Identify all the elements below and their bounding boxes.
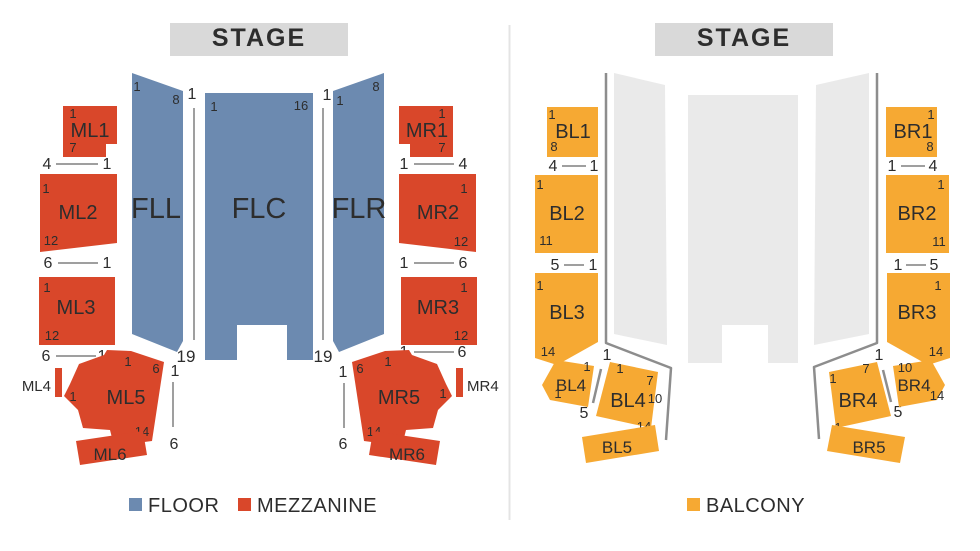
br4-rear-label: BR4 — [839, 390, 878, 412]
br1-seat-first: 1 — [927, 107, 934, 122]
bl4-front-num-left: 1 — [554, 386, 561, 401]
br3-label: BR3 — [898, 302, 937, 324]
aisle-right-row-first: 1 — [323, 87, 332, 104]
bl4-rear-num-right: 10 — [648, 391, 662, 406]
br4-front-num-bottom: 14 — [930, 388, 944, 403]
bl3-label: BL3 — [549, 302, 585, 324]
legend-mezzanine-label: MEZZANINE — [257, 495, 377, 517]
aisle-right-row-last: 19 — [314, 347, 333, 366]
bl2-seat-last: 11 — [539, 233, 553, 248]
balcony-map: STAGE BL1 1 8 4 1 BL2 1 11 5 1 BL3 1 14 … — [535, 23, 950, 517]
flc-seat-right: 16 — [294, 98, 308, 113]
bl4-rear-num-above: 1 — [603, 347, 612, 364]
bl1-seat-first: 1 — [548, 107, 555, 122]
mr2-seat-last: 12 — [454, 234, 468, 249]
mr5-label: MR5 — [378, 387, 420, 409]
br1-row-b: 4 — [929, 158, 938, 175]
br2-row-b: 5 — [930, 257, 939, 274]
br4-rear-num-above: 1 — [875, 347, 884, 364]
br5-label: BR5 — [852, 438, 885, 457]
aisle-left-row-first: 1 — [188, 86, 197, 103]
br2-seat-first: 1 — [937, 177, 944, 192]
mr5-aisle-top: 1 — [339, 364, 348, 381]
bl4-rear-num-top-left: 1 — [616, 361, 623, 376]
floor-mezzanine-map: STAGE FLL FLC FLR 1 8 1 16 1 8 1 19 1 19… — [22, 23, 499, 517]
seating-chart: STAGE FLL FLC FLR 1 8 1 16 1 8 1 19 1 19… — [0, 0, 980, 546]
br4-rear-num-left: 1 — [829, 371, 836, 386]
ml2-label: ML2 — [59, 202, 98, 224]
seating-chart-canvas: STAGE FLL FLC FLR 1 8 1 16 1 8 1 19 1 19… — [0, 0, 980, 546]
mr2-row-b: 6 — [459, 255, 468, 272]
ghost-floor-right — [814, 73, 869, 345]
bl2-row-a: 5 — [551, 257, 560, 274]
mr1-label: MR1 — [406, 120, 448, 142]
bl1-label: BL1 — [555, 121, 591, 143]
bl3-seat-first: 1 — [536, 278, 543, 293]
ml3-label: ML3 — [57, 297, 96, 319]
mr3-seat-last: 12 — [454, 328, 468, 343]
ml1-seat-first: 1 — [69, 106, 76, 121]
flr-seat-right: 8 — [372, 79, 379, 94]
section-mr4[interactable] — [456, 368, 463, 397]
flr-seat-left: 1 — [336, 93, 343, 108]
legend-mezzanine-swatch — [238, 498, 251, 511]
br2-seat-last: 11 — [932, 234, 946, 249]
ml3-seat-first: 1 — [43, 280, 50, 295]
ml1-row-b: 1 — [103, 156, 112, 173]
ml5-label: ML5 — [107, 387, 146, 409]
ml5-num-top-left: 1 — [124, 354, 131, 369]
mr5-num-right: 1 — [439, 386, 446, 401]
mr1-row-b: 4 — [459, 156, 468, 173]
br2-label: BR2 — [898, 203, 937, 225]
flc-seat-left: 1 — [210, 99, 217, 114]
ml4-label: ML4 — [22, 378, 51, 395]
ml5-num-top-right: 6 — [152, 361, 159, 376]
ml5-aisle-bottom: 6 — [170, 436, 179, 453]
bl1-row-b: 1 — [590, 158, 599, 175]
ml2-seat-first: 1 — [42, 181, 49, 196]
bl3-seat-last: 14 — [541, 344, 555, 359]
bl4-front-num-below: 5 — [580, 405, 589, 422]
ghost-floor-center — [688, 95, 798, 363]
bl4-front-num-top: 1 — [583, 359, 590, 374]
ml5-num-left: 1 — [69, 389, 76, 404]
br3-seat-first: 1 — [934, 278, 941, 293]
ml6-label: ML6 — [93, 445, 126, 464]
legend-balcony-label: BALCONY — [706, 495, 805, 517]
mr1-seat-first: 1 — [438, 106, 445, 121]
mr6-label: MR6 — [389, 445, 425, 464]
legend-floor-swatch — [129, 498, 142, 511]
stage-left-label: STAGE — [212, 24, 306, 52]
bl1-seat-last: 8 — [550, 139, 557, 154]
ml1-row-a: 4 — [43, 156, 52, 173]
ml5-aisle-top: 1 — [171, 363, 180, 380]
bl4-rear-label: BL4 — [610, 390, 646, 412]
mr3-seat-first: 1 — [460, 280, 467, 295]
br3-seat-last: 14 — [929, 344, 943, 359]
mr3-label: MR3 — [417, 297, 459, 319]
bl1-row-a: 4 — [549, 158, 558, 175]
bl4-divider-rail — [593, 369, 601, 403]
fll-label: FLL — [131, 193, 181, 225]
bl5-label: BL5 — [602, 438, 632, 457]
flr-label: FLR — [332, 193, 387, 225]
legend-floor-label: FLOOR — [148, 495, 219, 517]
mr5-num-top-right: 1 — [384, 354, 391, 369]
ml3-row-a: 6 — [42, 348, 51, 365]
br4-front-num-top: 10 — [898, 360, 912, 375]
section-flc[interactable] — [205, 93, 313, 360]
bl2-seat-first: 1 — [536, 177, 543, 192]
ml1-seat-last: 7 — [69, 140, 76, 155]
ml2-seat-last: 12 — [44, 233, 58, 248]
mr2-row-a: 1 — [400, 255, 409, 272]
section-ml4[interactable] — [55, 368, 62, 397]
mr2-seat-first: 1 — [460, 181, 467, 196]
mr2-label: MR2 — [417, 202, 459, 224]
legend-balcony-swatch — [687, 498, 700, 511]
br4-rear-num-top: 7 — [862, 361, 869, 376]
fll-seat-right: 8 — [172, 92, 179, 107]
mr1-seat-last: 7 — [438, 140, 445, 155]
bl2-row-b: 1 — [589, 257, 598, 274]
flc-label: FLC — [232, 193, 287, 225]
ml1-label: ML1 — [71, 120, 110, 142]
ghost-floor-left — [614, 73, 667, 345]
bl4-rear-num-top-right: 7 — [646, 373, 653, 388]
mr5-aisle-bottom: 6 — [339, 436, 348, 453]
ml3-seat-last: 12 — [45, 328, 59, 343]
ml2-row-a: 6 — [44, 255, 53, 272]
ml2-row-b: 1 — [103, 255, 112, 272]
stage-right-label: STAGE — [697, 24, 791, 52]
br2-row-a: 1 — [894, 257, 903, 274]
mr3-row-b: 6 — [458, 344, 467, 361]
fll-seat-left: 1 — [133, 79, 140, 94]
br4-front-label: BR4 — [897, 376, 930, 395]
br1-seat-last: 8 — [926, 139, 933, 154]
bl2-label: BL2 — [549, 203, 585, 225]
mr4-label: MR4 — [467, 378, 499, 395]
mr5-num-top-left: 6 — [356, 361, 363, 376]
mr1-row-a: 1 — [400, 156, 409, 173]
br1-row-a: 1 — [888, 158, 897, 175]
